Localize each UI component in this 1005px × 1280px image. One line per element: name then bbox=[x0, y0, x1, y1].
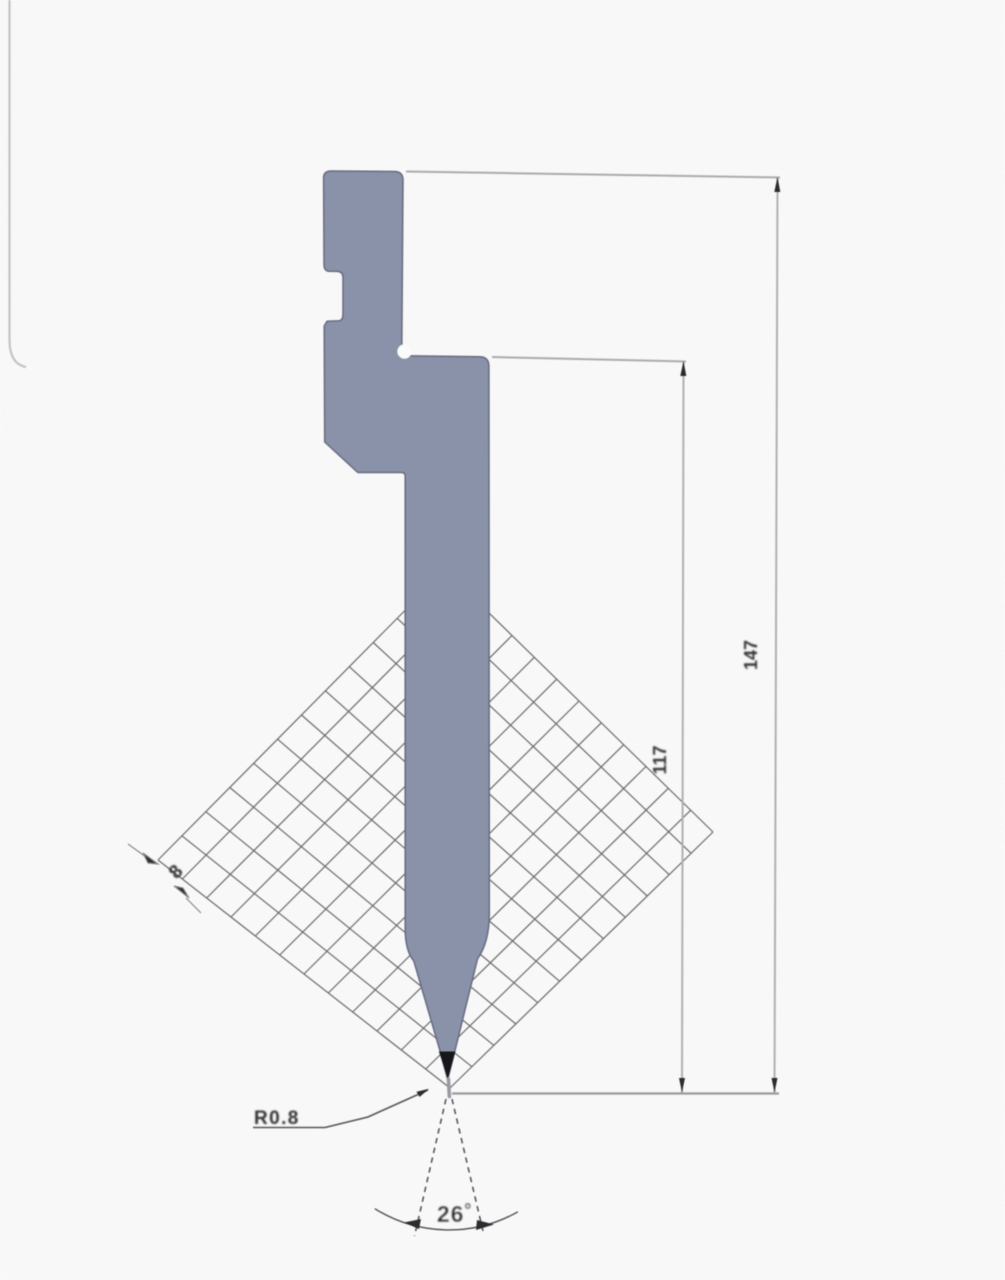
svg-text:R0.8: R0.8 bbox=[254, 1108, 300, 1129]
svg-text:147: 147 bbox=[741, 640, 761, 670]
svg-text:26˚: 26˚ bbox=[437, 1201, 473, 1227]
svg-text:117: 117 bbox=[650, 745, 670, 774]
